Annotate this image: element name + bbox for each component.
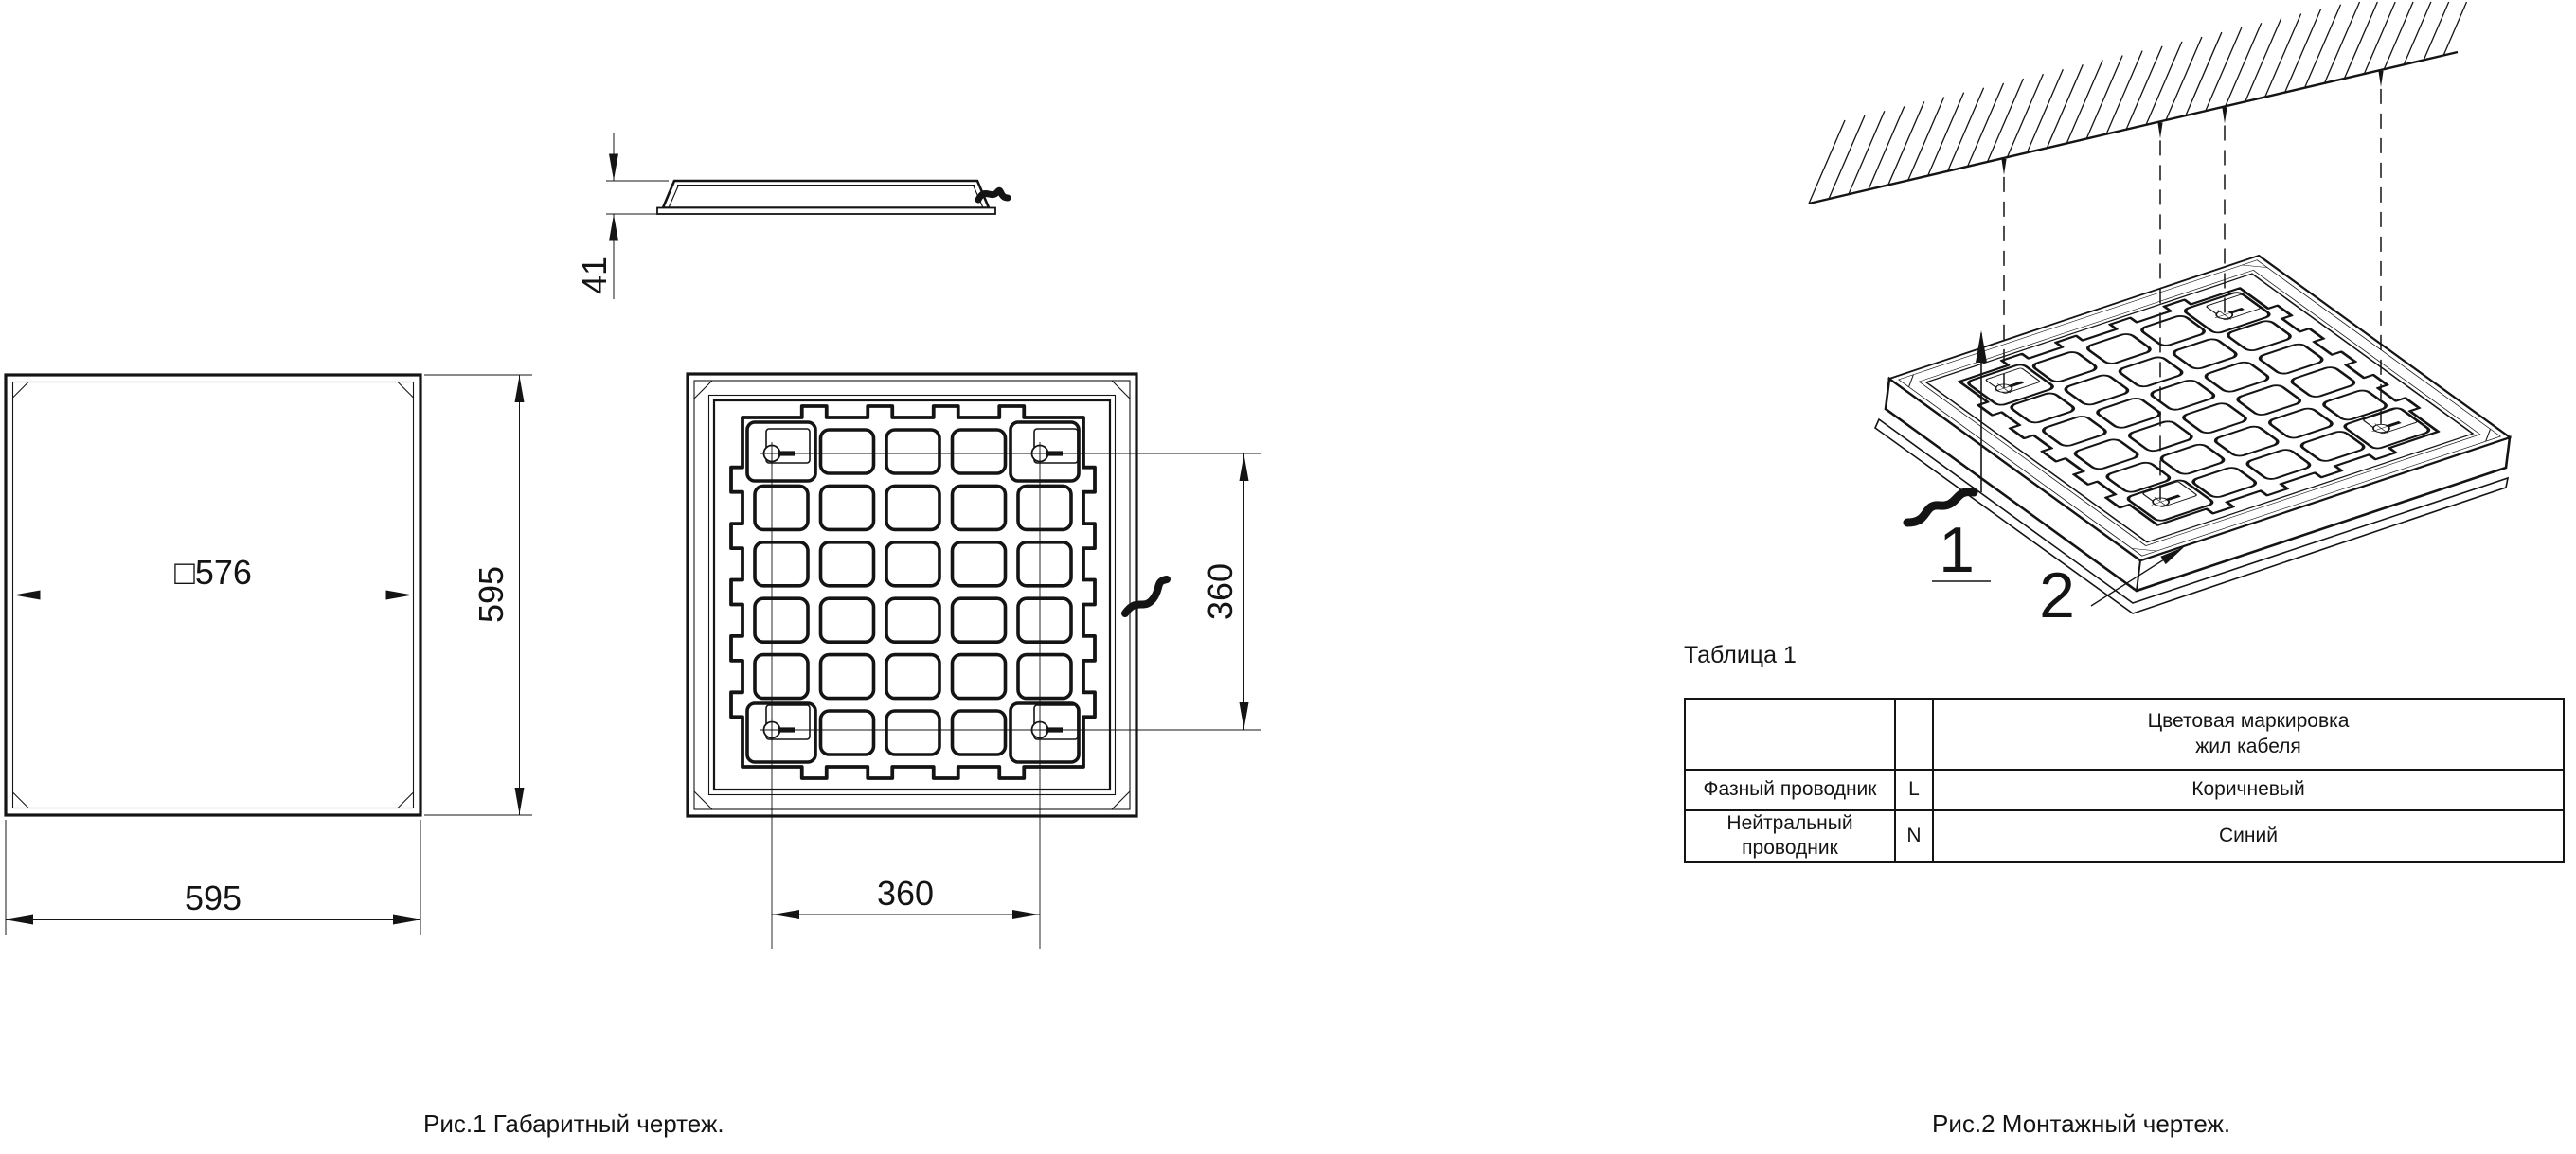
hatch-line [2027,69,2063,152]
grid-hole [755,542,808,586]
ceiling-pin [2157,122,2162,138]
dimension-arrowhead [773,910,799,919]
grid-hole [886,598,939,642]
ceiling-line [1809,52,2458,204]
drawing-canvas: □576 595 595 41 360 360 1 2 [0,0,2576,1154]
hatch-line [2007,74,2043,157]
hatch-line [2324,2,2359,83]
callout-2-label: 2 [2039,559,2075,631]
grid-hole [1018,486,1071,529]
callout-1-label: 1 [1939,514,1975,586]
hatch-line [2186,32,2222,115]
dimension-arrowhead [393,915,420,925]
hatch-line [2285,9,2321,93]
hatch-line [1829,115,1865,199]
hatch-line [1869,106,1905,189]
hatch-line [2265,14,2301,98]
dimension-arrowhead [7,915,33,925]
grid-hole [821,655,874,699]
dim-inner-width-label: □576 [174,553,252,592]
hatch-line [1987,79,2023,162]
table-header-row: Цветовая маркировка жил кабеля [1685,699,2564,770]
hatch-line [1908,98,1944,181]
phase-code-cell: L [1895,770,1933,810]
neutral-conductor-cell: Нейтральный проводник [1685,810,1895,862]
ceiling-pin [2222,107,2227,123]
hatch-line [2166,37,2202,120]
figure1-caption: Рис.1 Габаритный чертеж. [423,1110,724,1139]
header-marking-line2: жил кабеля [2195,736,2301,757]
hatch-line [2344,2,2377,79]
grid-hole [953,486,1006,529]
mounting-pad [747,703,815,762]
table-row: Нейтральный проводник N Синий [1685,810,2564,862]
grid-hole [821,598,874,642]
rear-view [688,374,1136,816]
rear-view-waffle [688,374,1136,816]
header-marking-cell: Цветовая маркировка жил кабеля [1933,699,2564,770]
grid-hole [886,542,939,586]
neutral-marking-cell: Синий [1933,810,2564,862]
grid-hole [755,598,808,642]
dim-mount-horizontal-label: 360 [877,874,934,913]
table-title: Таблица 1 [1684,642,1797,669]
dim-mount-vertical-label: 360 [1201,563,1240,620]
hatch-line [2047,64,2083,148]
ceiling-hatch [1809,2,2467,204]
hatch-line [2206,27,2242,111]
hatch-line [2146,42,2182,125]
figure2-caption: Рис.2 Монтажный чертеж. [1932,1110,2230,1139]
grid-hole [886,655,939,699]
dimension-arrowhead [609,215,618,241]
hatch-line [1928,93,1964,176]
hatch-line [1809,120,1845,204]
hatch-line [2305,5,2341,88]
table-row: Фазный проводник L Коричневый [1685,770,2564,810]
header-marking-line1: Цветовая маркировка [2148,710,2350,732]
dimension-arrowhead [515,788,525,814]
wiring-table: Цветовая маркировка жил кабеля Фазный пр… [1684,698,2565,863]
grid-hole [755,655,808,699]
side-view [606,133,1008,299]
grid-hole [953,598,1006,642]
hatch-line [2404,2,2431,64]
grid-hole [953,711,1006,755]
grid-hole [821,486,874,529]
cable-squiggle [978,190,1008,200]
grid-hole [821,711,874,755]
ceiling-pin [2001,159,2006,175]
hatch-line [2126,46,2162,130]
grid-hole [953,430,1006,473]
hatch-line [2106,51,2142,134]
dimension-arrowhead [1012,910,1039,919]
grid-hole [1018,542,1071,586]
hatch-line [2384,2,2413,69]
dim-height-label: 595 [472,566,510,623]
grid-hole [1018,598,1071,642]
hatch-line [1849,111,1885,194]
grid-hole [953,542,1006,586]
grid-hole [953,655,1006,699]
dim-width-label: 595 [185,879,241,917]
phase-conductor-cell: Фазный проводник [1685,770,1895,810]
grid-hole [886,430,939,473]
grid-hole [821,542,874,586]
hatch-line [1888,101,1924,185]
dimension-arrowhead [1240,454,1249,481]
hatch-line [2086,56,2122,139]
hatch-line [2443,2,2466,55]
dimension-arrowhead [515,376,525,402]
hatch-line [2245,18,2281,101]
dim-thickness-label: 41 [575,257,614,294]
grid-hole [755,486,808,529]
header-code-cell [1895,699,1933,770]
technical-drawing-page: □576 595 595 41 360 360 1 2 Рис.1 Габари… [0,0,2576,1154]
dimension-arrowhead [1240,702,1249,729]
hatch-line [1948,88,1984,171]
grid-hole [821,430,874,473]
hatch-line [1968,83,2004,167]
phase-marking-cell: Коричневый [1933,770,2564,810]
front-view [6,375,532,935]
hatch-line [2226,23,2262,106]
neutral-code-cell: N [1895,810,1933,862]
grid-hole [1018,655,1071,699]
grid-hole [886,711,939,755]
header-conductor-cell [1685,699,1895,770]
side-flange [657,208,995,215]
dimension-arrowhead [609,154,618,181]
hatch-line [2364,2,2395,74]
grid-hole [886,486,939,529]
ceiling-pin [2378,71,2383,87]
hatch-line [2066,60,2102,143]
